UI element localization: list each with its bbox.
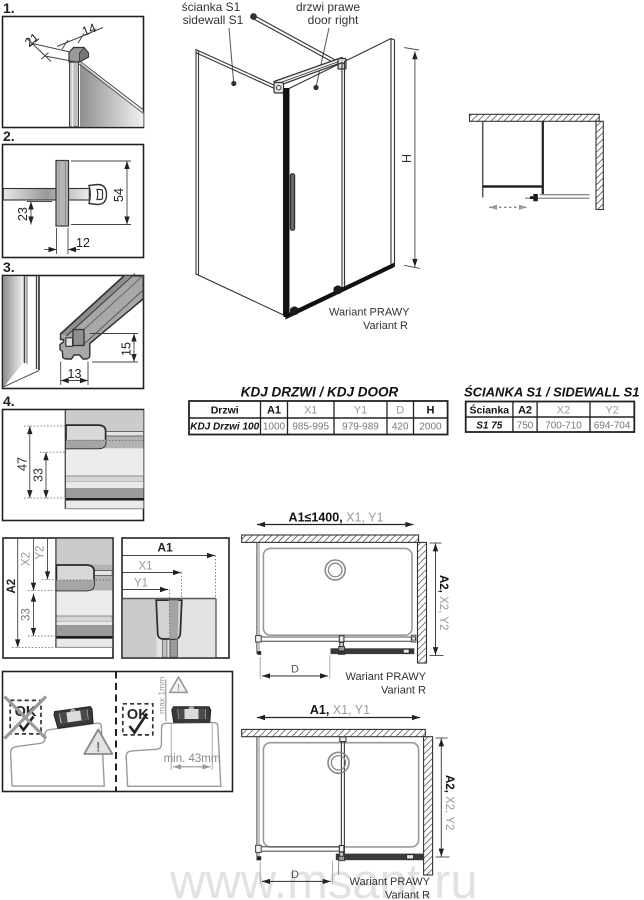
svg-text:2000: 2000 <box>419 422 442 433</box>
svg-text:door right: door right <box>308 13 359 27</box>
svg-text:13: 13 <box>68 367 82 381</box>
svg-text:S1 75: S1 75 <box>476 421 503 432</box>
svg-text:D: D <box>291 869 299 881</box>
svg-text:33: 33 <box>21 608 33 621</box>
svg-text:A1: A1 <box>157 541 173 555</box>
svg-text:ścianka S1: ścianka S1 <box>182 0 241 14</box>
svg-text:Variant R: Variant R <box>363 320 408 332</box>
svg-text:3.: 3. <box>3 259 15 275</box>
svg-text:985-995: 985-995 <box>292 422 329 433</box>
svg-text:Variant R: Variant R <box>385 890 430 900</box>
svg-text:D: D <box>291 664 299 676</box>
svg-text:Wariant PRAWY: Wariant PRAWY <box>350 876 431 888</box>
svg-text:KDJ DRZWI / KDJ DOOR: KDJ DRZWI / KDJ DOOR <box>241 385 399 400</box>
svg-text:min. 43mm: min. 43mm <box>164 753 221 765</box>
svg-text:X2: X2 <box>557 405 570 417</box>
svg-text:23: 23 <box>16 207 30 221</box>
svg-text:4.: 4. <box>3 393 15 409</box>
svg-text:47: 47 <box>16 457 30 471</box>
svg-text:1000: 1000 <box>263 422 286 433</box>
svg-text:Y2: Y2 <box>35 545 47 559</box>
svg-text:694-704: 694-704 <box>594 421 631 432</box>
svg-text:15: 15 <box>120 342 134 356</box>
svg-text:Drzwi: Drzwi <box>211 405 239 417</box>
svg-text:979-989: 979-989 <box>342 422 379 433</box>
svg-text:Y1: Y1 <box>354 405 367 417</box>
svg-text:H: H <box>400 154 414 163</box>
svg-text:!: ! <box>96 740 101 755</box>
svg-text:21: 21 <box>22 30 42 50</box>
svg-text:sidewall S1: sidewall S1 <box>183 13 244 27</box>
svg-text:H: H <box>427 405 435 417</box>
svg-text:Wariant PRAWY: Wariant PRAWY <box>329 307 410 319</box>
svg-text:12: 12 <box>76 236 90 250</box>
svg-text:A1≤1400, X1, Y1: A1≤1400, X1, Y1 <box>289 511 384 525</box>
svg-text:X1: X1 <box>138 561 152 573</box>
svg-text:1.: 1. <box>3 0 15 16</box>
svg-text:A2: A2 <box>518 405 532 417</box>
svg-text:A2, X2, Y2: A2, X2, Y2 <box>437 575 449 630</box>
svg-text:Variant R: Variant R <box>381 685 426 697</box>
svg-text:750: 750 <box>517 421 534 432</box>
svg-text:A1: A1 <box>267 405 281 417</box>
svg-text:drzwi prawe: drzwi prawe <box>296 0 360 14</box>
svg-text:X1: X1 <box>304 405 317 417</box>
svg-text:420: 420 <box>392 422 409 433</box>
svg-text:KDJ Drzwi 100: KDJ Drzwi 100 <box>190 422 259 433</box>
svg-text:33: 33 <box>32 468 46 482</box>
svg-text:54: 54 <box>112 188 126 202</box>
svg-text:D: D <box>396 405 404 417</box>
svg-text:max 1mm: max 1mm <box>156 677 166 714</box>
svg-text:Y1: Y1 <box>134 578 148 590</box>
svg-text:!: ! <box>177 683 180 693</box>
svg-text:Ścianka: Ścianka <box>469 404 509 417</box>
svg-text:X2: X2 <box>21 552 33 566</box>
svg-text:A1, X1, Y1: A1, X1, Y1 <box>310 703 370 717</box>
svg-text:ŚCIANKA S1 / SIDEWALL S1: ŚCIANKA S1 / SIDEWALL S1 <box>464 385 640 400</box>
svg-text:700-710: 700-710 <box>545 421 582 432</box>
svg-text:Wariant PRAWY: Wariant PRAWY <box>346 671 427 683</box>
svg-text:A2, X2, Y2: A2, X2, Y2 <box>443 775 455 830</box>
svg-text:A2: A2 <box>6 579 18 594</box>
svg-text:Y2: Y2 <box>605 405 618 417</box>
svg-text:2.: 2. <box>3 128 15 144</box>
